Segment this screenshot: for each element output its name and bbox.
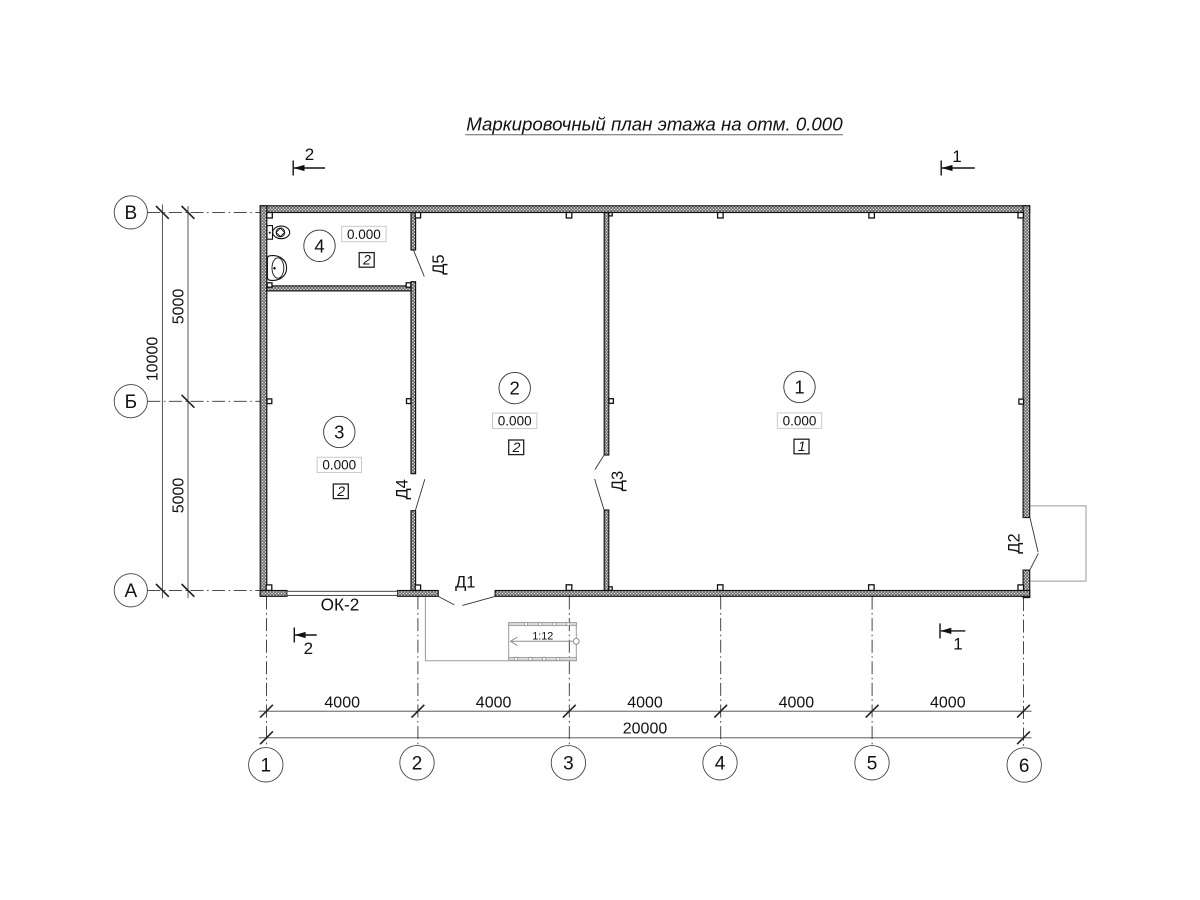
- svg-text:1:12: 1:12: [532, 630, 553, 642]
- svg-text:Д3: Д3: [609, 471, 627, 491]
- svg-text:3: 3: [563, 754, 574, 775]
- svg-text:Д5: Д5: [430, 254, 448, 274]
- svg-text:2: 2: [512, 439, 521, 455]
- svg-text:4000: 4000: [779, 695, 815, 712]
- svg-text:5000: 5000: [171, 289, 188, 325]
- svg-text:0.000: 0.000: [322, 458, 356, 473]
- svg-text:1: 1: [953, 635, 962, 654]
- svg-text:1: 1: [261, 756, 272, 777]
- svg-text:1: 1: [798, 438, 806, 454]
- svg-text:Д2: Д2: [1006, 533, 1024, 553]
- svg-text:5000: 5000: [171, 478, 188, 514]
- svg-text:Д1: Д1: [455, 573, 475, 591]
- svg-text:0.000: 0.000: [783, 413, 817, 428]
- svg-text:1: 1: [952, 147, 961, 166]
- svg-text:А: А: [124, 581, 137, 602]
- svg-text:2: 2: [304, 639, 313, 658]
- svg-text:10000: 10000: [145, 337, 162, 382]
- svg-text:0.000: 0.000: [347, 227, 381, 242]
- svg-text:Маркировочный план этажа на от: Маркировочный план этажа на отм. 0.000: [466, 114, 843, 135]
- svg-text:5: 5: [867, 754, 878, 775]
- svg-text:1: 1: [794, 377, 804, 398]
- svg-text:4000: 4000: [930, 695, 966, 712]
- svg-text:3: 3: [334, 422, 344, 443]
- svg-text:0.000: 0.000: [498, 414, 532, 429]
- svg-text:Д4: Д4: [394, 479, 412, 499]
- svg-text:Б: Б: [125, 392, 137, 413]
- svg-text:В: В: [124, 203, 137, 224]
- svg-text:4: 4: [314, 235, 324, 256]
- svg-text:2: 2: [362, 252, 371, 268]
- svg-text:4000: 4000: [324, 695, 360, 712]
- svg-text:2: 2: [305, 145, 314, 164]
- svg-text:2: 2: [336, 483, 345, 499]
- svg-text:6: 6: [1019, 756, 1030, 777]
- svg-text:ОК-2: ОК-2: [321, 595, 360, 615]
- svg-text:2: 2: [510, 378, 520, 399]
- svg-text:4000: 4000: [627, 695, 663, 712]
- svg-text:20000: 20000: [623, 721, 668, 738]
- svg-text:4000: 4000: [476, 695, 512, 712]
- svg-text:2: 2: [412, 754, 423, 775]
- svg-text:4: 4: [715, 754, 726, 775]
